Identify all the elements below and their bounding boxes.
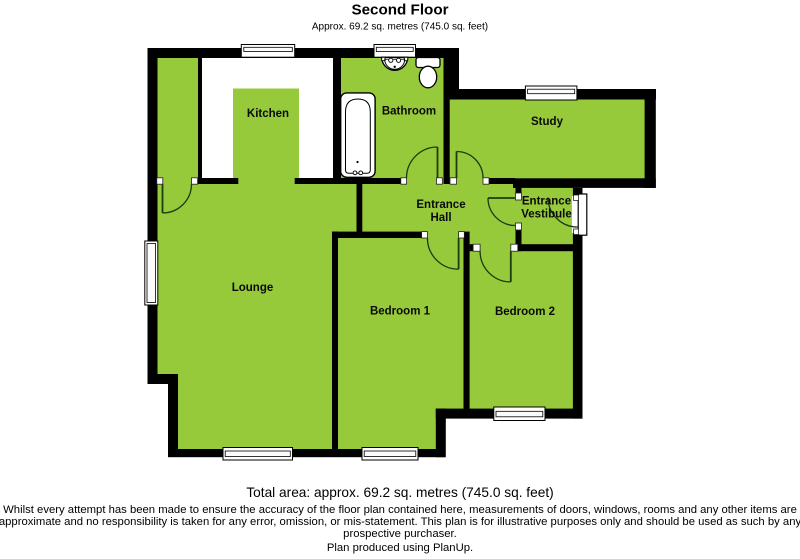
svg-text:Plan produced using PlanUp.: Plan produced using PlanUp. <box>327 542 473 554</box>
svg-text:Entrance: Entrance <box>416 199 465 211</box>
svg-text:approximate and no responsibil: approximate and no responsibility is tak… <box>0 516 800 528</box>
svg-text:Study: Study <box>531 116 564 128</box>
svg-text:Bathroom: Bathroom <box>382 106 436 118</box>
svg-text:Total area: approx. 69.2 sq.: Total area: approx. 69.2 sq. metres (745… <box>246 485 553 500</box>
svg-text:Entrance: Entrance <box>522 196 571 208</box>
svg-text:Approx. 69.2 sq. metres (745.: Approx. 69.2 sq. metres (745.0 sq. feet) <box>312 22 488 33</box>
svg-text:Bedroom 1: Bedroom 1 <box>370 306 431 318</box>
svg-text:Lounge: Lounge <box>232 282 274 294</box>
svg-text:Hall: Hall <box>430 212 451 224</box>
svg-text:Second Floor: Second Floor <box>351 2 448 19</box>
svg-text:prospective purchaser.: prospective purchaser. <box>343 528 457 540</box>
svg-text:Vestibule: Vestibule <box>521 209 572 221</box>
svg-text:Bedroom 2: Bedroom 2 <box>495 306 555 318</box>
svg-text:Whilst every attempt has been: Whilst every attempt has been made to en… <box>3 504 797 516</box>
svg-text:Kitchen: Kitchen <box>247 108 289 120</box>
